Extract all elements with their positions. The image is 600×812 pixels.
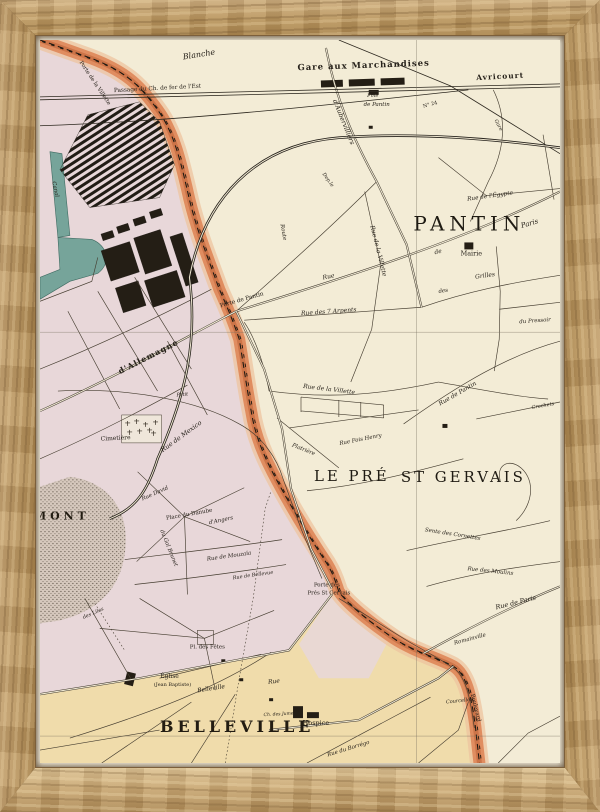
map-label-56: BELLEVILLE [160, 717, 314, 736]
map-label-51: Pl. des Fêtes [190, 643, 225, 650]
map-label-4: Fme [366, 93, 378, 99]
map-label-37: Porte des [314, 582, 340, 588]
map-label-52: Église [160, 672, 179, 680]
map-label-33: ST GERVAIS [401, 468, 526, 486]
frame-rail-bottom [0, 768, 600, 812]
mairie-icon [464, 242, 473, 249]
map-label-11: Mairie [461, 249, 483, 257]
frame-rail-top [0, 0, 600, 35]
map-label-32: LE PRÉ [314, 467, 390, 485]
map-label-38: Prés St Gervais [307, 589, 350, 596]
map-label-57: Hospice [303, 719, 330, 727]
map-label-49: MONT [40, 510, 90, 523]
map-label-26: Petit [175, 392, 188, 399]
map-label-53: (Jean Baptiste) [154, 681, 191, 688]
frame-rail-left [0, 0, 35, 812]
antique-map-print: BlancheGare aux MarchandisesAvricourtPas… [40, 40, 560, 763]
picture-frame: BlancheGare aux MarchandisesAvricourtPas… [0, 0, 600, 812]
frame-rail-right [565, 0, 600, 812]
print-margin: BlancheGare aux MarchandisesAvricourtPas… [35, 35, 565, 768]
map-label-5: de Pantin [364, 102, 391, 108]
map-label-10: PANTIN [413, 212, 525, 235]
